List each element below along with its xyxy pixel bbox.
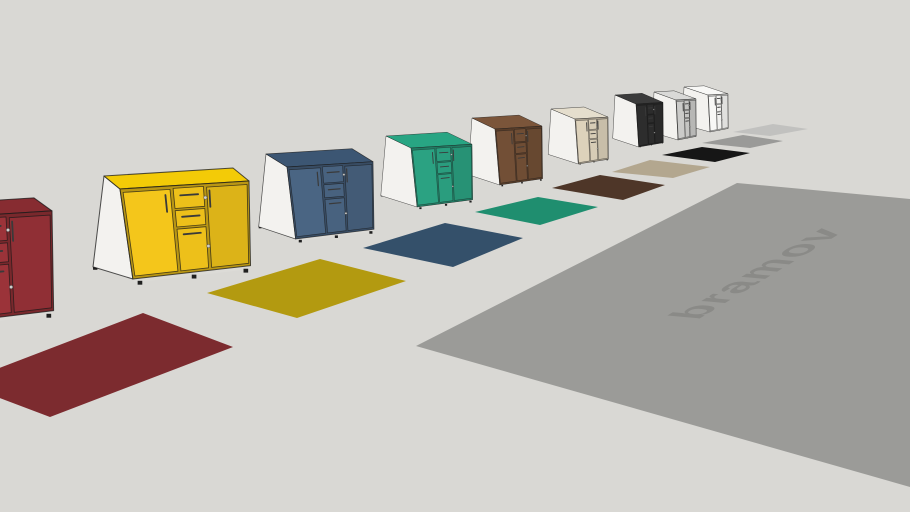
cabinet-right-door [345,165,373,231]
right-door-handle-icon [12,222,13,241]
cabinet-right-door [654,104,663,143]
hinge-icon [9,285,12,288]
cabinet-drawer-2 [324,183,344,198]
color-sample-mat-black[interactable] [662,147,750,162]
cabinet-drawer-2 [685,110,690,118]
cabinet-drawer-2 [515,143,526,154]
hinge-icon [527,165,528,166]
cabinet-drawer-1 [514,129,525,142]
color-sample-mat-steel-blue[interactable] [363,223,523,267]
cabinet-beige-oak[interactable] [548,107,608,165]
cabinet-drawer-2 [648,115,654,123]
color-sample-mat-walnut-brown[interactable] [552,175,665,200]
hinge-icon [654,132,655,133]
left-door-handle-icon [512,133,513,143]
cabinet-foot [501,185,503,186]
color-sample-mat-teal-green[interactable] [475,197,598,225]
cabinet-right-door [527,128,542,179]
cabinet-foot [299,240,302,243]
cabinet-right-door [721,95,728,128]
cabinet-drawer-1 [589,119,597,130]
hinge-icon [597,148,598,149]
color-sample-mat-white[interactable] [733,124,808,136]
cabinet-drawer-1 [684,100,689,109]
hinge-icon [343,173,345,175]
drawer-handle-icon-1 [439,152,447,153]
cabinet-drawer-1 [173,186,205,208]
cabinet-foot [521,182,523,183]
cabinet-foot [469,201,471,203]
cabinet-drawer-1 [647,104,654,114]
cabinet-drawer-2 [717,104,722,111]
hinge-icon [596,124,597,125]
drawer-handle-icon-1 [180,194,198,195]
cabinet-walnut-brown[interactable] [468,115,543,186]
cabinet-right-door [452,147,472,201]
cabinet-foot [540,179,542,180]
hinge-icon [204,196,207,199]
cabinet-foot [445,204,447,206]
cabinet-dark-red[interactable] [0,198,54,331]
cabinet-foot [419,207,421,209]
color-sample-mat-dark-red[interactable] [0,313,233,417]
cabinet-right-door [207,185,249,268]
cabinet-foot [244,269,249,273]
hinge-icon [452,186,454,188]
cabinet-drawer-2 [589,130,597,139]
cabinet-foot [46,314,51,318]
cabinet-drawer-1 [716,95,721,104]
viewport-background: bramov [0,0,910,512]
cabinet-drawer-2 [0,243,9,264]
right-door-handle-icon [209,190,210,206]
cabinet-yellow[interactable] [93,168,251,285]
right-door-handle-icon [347,169,348,182]
color-sample-mat-light-gray[interactable] [702,135,783,148]
cabinet-foot [192,275,197,279]
3d-model-viewport[interactable]: bramov [0,0,910,512]
hinge-icon [6,228,9,231]
cabinet-foot [138,281,143,285]
cabinet-right-door [9,215,51,312]
hinge-icon [345,212,347,214]
cabinet-right-door [689,100,696,136]
hinge-icon [451,154,453,156]
cabinet-foot [369,231,372,234]
cabinet-drawer-2 [175,209,206,228]
cabinet-drawer-1 [436,147,451,161]
drawer-handle-icon-1 [327,172,339,173]
cabinet-foot [335,235,338,238]
cabinet-drawer-2 [437,162,452,174]
hinge-icon [689,126,690,127]
cabinet-teal-green[interactable] [381,132,473,209]
cabinet-right-door [597,119,608,160]
hinge-icon [653,109,654,110]
cabinet-steel-blue[interactable] [259,149,374,243]
cabinet-drawer-1 [322,166,343,184]
hinge-icon [721,119,722,120]
cabinet-black[interactable] [613,93,664,148]
hinge-icon [207,244,210,247]
drawer-handle-icon-2 [518,147,524,148]
color-sample-mat-beige-oak[interactable] [612,160,710,178]
hinge-icon [525,135,526,136]
